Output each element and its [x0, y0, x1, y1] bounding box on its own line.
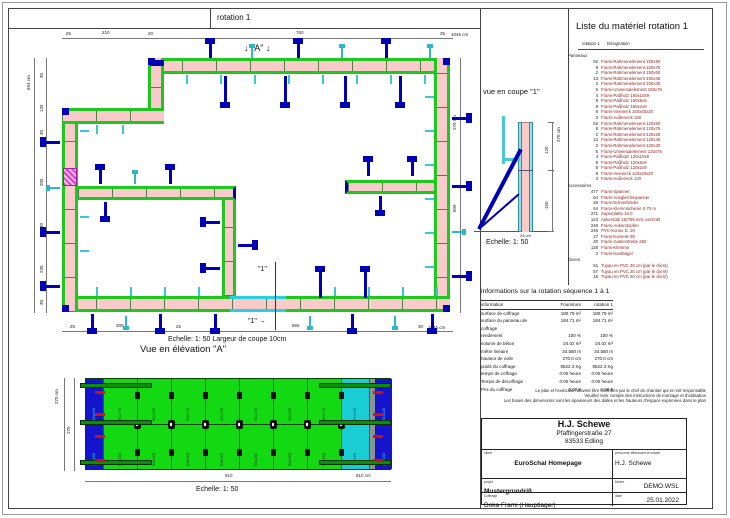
- brace-stem: [159, 314, 162, 328]
- plan-brace: [339, 44, 345, 58]
- plan-brace: [205, 38, 215, 58]
- material-row: 2Frami-Kantbügel: [568, 251, 708, 257]
- formwork-cell: Coffrage Doka Frami (Hauptlager): [482, 493, 613, 506]
- brace-stem: [206, 267, 220, 270]
- bracket-stub: [436, 287, 438, 296]
- plan-brace: [165, 164, 175, 184]
- info-row-rotation: 270.0 cm: [581, 355, 613, 363]
- info-row-fourniture: 0.00 heure: [531, 378, 581, 386]
- brace-stem: [429, 48, 431, 58]
- dim-label: 810 cm: [356, 474, 371, 479]
- material-qty: 3: [568, 176, 598, 182]
- corner-closure: [443, 58, 450, 65]
- corner-closure: [443, 305, 450, 312]
- panel-label-bottom: 90x150: [152, 428, 156, 466]
- plan-brace: [123, 316, 129, 330]
- red-clamp: [373, 413, 383, 416]
- project-label: projet: [482, 479, 493, 485]
- panel-label-top: 75x120: [353, 383, 357, 421]
- material-list: Liste du matériel rotation 1 rotation 1 …: [568, 8, 713, 285]
- company-name: H.J. Schewe: [482, 419, 686, 430]
- brace-head: [340, 102, 350, 108]
- panel-clamp-pin: [170, 423, 172, 426]
- date-label: date: [613, 493, 622, 499]
- plan-brace: [363, 156, 373, 176]
- red-clamp: [95, 413, 105, 416]
- corner-closure: [62, 305, 69, 312]
- info-row-label: Temps de décoffrage: [481, 378, 531, 386]
- material-list-rows: Panneaux52Frami-Rahmenelement 150x908Fra…: [568, 52, 708, 280]
- brace-head: [466, 271, 472, 281]
- info-row: mètre linéaire34.580 m34.580 m: [481, 348, 613, 356]
- plan-brace: [210, 314, 220, 334]
- panel-label-bottom: 90x150: [288, 428, 292, 466]
- bracket-stub: [80, 216, 89, 218]
- info-row: temps de coffrage0.00 heure0.00 heure: [481, 370, 613, 378]
- info-row-label: surface de coffrage: [481, 310, 531, 318]
- plan-brace: [315, 266, 325, 298]
- panel-connector: [271, 392, 276, 399]
- panel-clamp: [168, 420, 175, 429]
- brace-stem: [394, 316, 396, 326]
- panel-clamp-pin: [204, 423, 206, 426]
- title-block-row2: client EuroSchal Homepage personne effec…: [482, 449, 686, 478]
- info-header-row: information Fourniture rotation 1: [481, 300, 613, 310]
- bracket-stub: [368, 287, 370, 296]
- brace-head: [155, 328, 165, 334]
- note-line: Les bases des dimensions sont les épaiss…: [480, 398, 706, 403]
- brace-head: [220, 102, 230, 108]
- elev-dim-bottom: [85, 481, 391, 482]
- bracket-stub: [80, 250, 89, 252]
- info-title: informations sur la rotation séquence 1 …: [481, 289, 609, 296]
- bracket-stub: [130, 287, 132, 296]
- company-address2: 83533 Edling: [482, 438, 686, 446]
- info-rows: surface de coffrage180.79 m²180.79 m²sur…: [481, 310, 613, 394]
- date-cell: date 25.01.2022: [613, 493, 685, 506]
- panel-label-bottom: 90x150: [186, 428, 190, 466]
- material-name: Frami-Kantbügel: [601, 251, 633, 257]
- brace-stem: [46, 231, 60, 234]
- info-row-fourniture: 34.580 m: [531, 348, 581, 356]
- bracket-stub: [425, 232, 434, 234]
- panel-label-top: 90x120: [254, 383, 258, 421]
- date-value: 25.01.2022: [613, 493, 685, 504]
- material-name: Tuyau en PVC 20 cm (par le client): [601, 274, 668, 280]
- panel-connector: [237, 392, 242, 399]
- brace-stem: [364, 272, 367, 298]
- formwork-label: Coffrage: [482, 493, 497, 499]
- brace-head: [375, 210, 385, 216]
- bracket-stub: [254, 75, 256, 84]
- section-dim-tick: [548, 122, 554, 123]
- brace-head: [280, 102, 290, 108]
- info-row-label: rendement: [481, 332, 531, 340]
- elev-dim-left-outer: [64, 378, 65, 471]
- plan-brace: [155, 314, 165, 334]
- plan-brace: [452, 113, 472, 123]
- dim-label: 270: [67, 426, 72, 434]
- info-row-fourniture: 0.00 heure: [531, 370, 581, 378]
- info-row-rotation: 8622.3 Kg: [581, 363, 613, 371]
- material-qty: 2: [568, 251, 598, 257]
- plan-brace: [46, 185, 60, 191]
- panel-connector: [169, 392, 174, 399]
- bracket-stub: [220, 75, 222, 84]
- section-guard-post: [502, 116, 505, 164]
- material-header-rule: [578, 49, 704, 50]
- brace-head: [100, 216, 110, 222]
- brace-stem: [169, 170, 172, 184]
- info-row-fourniture: 8622.3 Kg: [531, 363, 581, 371]
- bracket-stub: [198, 287, 200, 296]
- panel-connector: [203, 392, 208, 399]
- red-clamp: [373, 391, 383, 394]
- red-clamp: [373, 459, 383, 462]
- bracket-stub: [390, 75, 392, 84]
- brace-stem: [99, 170, 102, 184]
- section-panel-right: [529, 122, 533, 232]
- brace-head: [210, 328, 220, 334]
- brace-stem: [452, 117, 466, 120]
- elevation-area: Vue en élévation "A" 45x12045x15090x1209…: [0, 340, 480, 510]
- section-view: vue en coupe "1" 120 150 270 cm 25 cm Ec…: [470, 80, 570, 255]
- info-row: surface de coffrage180.79 m²180.79 m²: [481, 310, 613, 318]
- info-row-label: volume de béton: [481, 340, 531, 348]
- plan-brace: [95, 164, 105, 184]
- brace-head: [347, 328, 357, 334]
- plan-brace: [392, 316, 398, 330]
- info-row-fourniture: 24.02 m³: [531, 340, 581, 348]
- panel-label-top: 90x120: [152, 383, 156, 421]
- red-clamp: [95, 459, 105, 462]
- brace-stem: [309, 316, 311, 326]
- panel-connector: [169, 449, 174, 456]
- elevation-box: 45x12045x15090x12090x15090x12090x15090x1…: [85, 378, 391, 470]
- person-value: H.J. Schewe: [613, 456, 685, 467]
- section-dim-line: [552, 122, 553, 232]
- bracket-stub: [288, 75, 290, 84]
- bracket-stub: [334, 287, 336, 296]
- panel-label-bottom: 90x150: [254, 428, 258, 466]
- plan-brace: [293, 38, 303, 58]
- brace-head: [395, 102, 405, 108]
- brace-stem: [50, 187, 60, 189]
- dim-label: 270 cm: [55, 389, 60, 404]
- brace-head: [307, 326, 313, 330]
- title-block-company-cell: H.J. Schewe Pfaffingerstraße 27 83533 Ed…: [482, 419, 686, 449]
- brace-stem: [134, 174, 136, 184]
- waler-bar: [319, 383, 391, 388]
- info-row-rotation: 180.79 m²: [581, 310, 613, 318]
- bracket-stub: [425, 266, 434, 268]
- brace-stem: [341, 48, 343, 58]
- section-strut-main: [477, 148, 522, 230]
- panel-label-top: 90x120: [322, 383, 326, 421]
- plan-decor-layer: [0, 0, 480, 360]
- info-row: surface du panneau de coffrage184.71 m²1…: [481, 317, 613, 332]
- waler-bar: [80, 460, 152, 465]
- panel-clamp: [270, 420, 277, 429]
- brace-stem: [125, 316, 127, 326]
- plan-brace: [40, 227, 60, 237]
- plan-brace: [452, 181, 472, 191]
- info-row-rotation: 0.00 heure: [581, 378, 613, 386]
- material-list-title: Liste du matériel rotation 1: [576, 22, 688, 32]
- brace-stem: [344, 76, 347, 102]
- info-row: Temps de décoffrage0.00 heure0.00 heure: [481, 378, 613, 386]
- brace-head: [252, 240, 258, 250]
- panel-connector: [339, 449, 344, 456]
- plan-brace: [395, 76, 405, 108]
- brace-head: [87, 328, 97, 334]
- formwork-value: Doka Frami (Hauptlager): [482, 499, 612, 509]
- bracket-stub: [424, 75, 426, 84]
- title-block: H.J. Schewe Pfaffingerstraße 27 83533 Ed…: [481, 418, 687, 505]
- plan-brace: [375, 196, 385, 216]
- panel-label-top: 90x120: [118, 383, 122, 421]
- drawing-sheet: rotation 1 25 210 20 760 35 1045 cm 694 …: [0, 0, 730, 518]
- brace-head: [427, 328, 437, 334]
- section-dim-tick: [548, 231, 554, 232]
- client-cell: client EuroSchal Homepage: [482, 450, 613, 478]
- red-clamp: [95, 435, 105, 438]
- bracket-stub: [96, 125, 98, 134]
- title-block-row3: projet Mustergrundriß fichier DEMO.WSL: [482, 478, 686, 492]
- plan-brace: [249, 44, 255, 58]
- file-cell: fichier DEMO.WSL: [613, 479, 685, 492]
- material-row: 15Tuyau en PVC 20 cm (par le client): [568, 274, 708, 280]
- dim-label: 150: [545, 201, 550, 209]
- bracket-stub: [96, 287, 98, 296]
- bracket-stub: [322, 75, 324, 84]
- brace-stem: [411, 162, 414, 176]
- info-row-rotation: 184.71 m²: [581, 317, 613, 332]
- dim-label: 120: [545, 146, 550, 154]
- plan-brace: [381, 38, 391, 58]
- section-wall-core: [522, 122, 529, 232]
- plan-brace: [427, 314, 437, 334]
- panel-connector: [135, 392, 140, 399]
- waler-bar: [80, 420, 152, 425]
- info-row: hauteur de voile270.0 cm270.0 cm: [481, 355, 613, 363]
- info-row-label: hauteur de voile: [481, 355, 531, 363]
- red-clamp: [95, 391, 105, 394]
- brace-stem: [452, 231, 462, 233]
- elevation-title: Vue en élévation "A": [140, 345, 226, 355]
- brace-stem: [46, 141, 60, 144]
- brace-stem: [46, 285, 60, 288]
- plan-brace: [347, 314, 357, 334]
- info-row: volume de béton24.02 m³24.02 m³: [481, 340, 613, 348]
- brace-stem: [452, 185, 466, 188]
- corner-closure: [62, 108, 69, 115]
- panel-clamp: [304, 420, 311, 429]
- panel-connector: [135, 449, 140, 456]
- info-row-label: mètre linéaire: [481, 348, 531, 356]
- red-clamp: [373, 435, 383, 438]
- info-col-fourniture: Fourniture: [531, 301, 581, 309]
- closure-bar: [150, 60, 164, 66]
- dim-label: 25 cm: [520, 234, 531, 238]
- info-row-fourniture: 270.0 cm: [531, 355, 581, 363]
- file-label: fichier: [613, 479, 624, 485]
- waler-bar: [80, 383, 152, 388]
- panel-clamp-pin: [272, 423, 274, 426]
- section-scale: Echelle: 1: 50: [486, 239, 528, 246]
- info-row-label: poids du coffrage: [481, 363, 531, 371]
- brace-head: [462, 229, 466, 235]
- brace-stem: [385, 44, 388, 58]
- brace-stem: [284, 76, 287, 102]
- bracket-stub: [402, 287, 404, 296]
- section-title: vue en coupe "1": [483, 88, 540, 96]
- plan-brace: [427, 44, 433, 58]
- brace-stem: [431, 314, 434, 328]
- brace-stem: [91, 314, 94, 328]
- info-row-fourniture: 184.71 m²: [531, 317, 581, 332]
- client-value: EuroSchal Homepage: [482, 456, 612, 467]
- dim-label: 810: [225, 474, 233, 479]
- info-row-fourniture: 180.79 m²: [531, 310, 581, 318]
- info-row-rotation: 34.580 m: [581, 348, 613, 356]
- company-address1: Pfaffingerstraße 27: [482, 430, 686, 438]
- brace-stem: [351, 314, 354, 328]
- panel-clamp-pin: [238, 423, 240, 426]
- section-ground-line: [474, 231, 550, 232]
- bracket-stub: [425, 198, 434, 200]
- panel-label-top: 90x120: [186, 383, 190, 421]
- section-panel-joint: [518, 170, 533, 171]
- panel-connector: [237, 449, 242, 456]
- project-cell: projet Mustergrundriß: [482, 479, 613, 492]
- brace-stem: [214, 314, 217, 328]
- material-col-rotation: rotation 1: [582, 42, 600, 46]
- plan-brace: [407, 156, 417, 176]
- brace-stem: [367, 162, 370, 176]
- plan-brace: [40, 281, 60, 291]
- brace-stem: [224, 76, 227, 102]
- bracket-stub: [80, 130, 89, 132]
- bracket-stub: [425, 164, 434, 166]
- panel-connector: [339, 392, 344, 399]
- info-row-fourniture: 100 %: [531, 332, 581, 340]
- info-row-rotation: 100 %: [581, 332, 613, 340]
- info-table: information Fourniture rotation 1 surfac…: [481, 300, 613, 393]
- waler-bar: [319, 420, 391, 425]
- plan-brace: [452, 271, 472, 281]
- bracket-stub: [356, 75, 358, 84]
- panel-label-top: 90x120: [288, 383, 292, 421]
- plan-area: 25 210 20 760 35 1045 cm 694 cm 30 139 3…: [0, 0, 480, 360]
- plan-brace: [307, 316, 313, 330]
- brace-stem: [209, 44, 212, 58]
- brace-stem: [251, 48, 253, 58]
- title-block-row4: Coffrage Doka Frami (Hauptlager) date 25…: [482, 492, 686, 506]
- brace-head: [392, 326, 398, 330]
- brace-stem: [379, 196, 382, 210]
- info-row: rendement100 %100 %: [481, 332, 613, 340]
- material-qty: 15: [568, 274, 598, 280]
- dim-label: 270 cm: [557, 127, 562, 142]
- brace-stem: [104, 202, 107, 216]
- info-col-information: information: [481, 301, 531, 309]
- panel-label-top: 90x120: [220, 383, 224, 421]
- brace-stem: [297, 44, 300, 58]
- material-row: 3Frami-Außeneck 120: [568, 176, 708, 182]
- panel-connector: [203, 449, 208, 456]
- panel-clamp: [202, 420, 209, 429]
- bracket-stub: [122, 125, 124, 134]
- panel-connector: [271, 449, 276, 456]
- bracket-stub: [425, 96, 434, 98]
- bracket-stub: [186, 75, 188, 84]
- panel-clamp-pin: [306, 423, 308, 426]
- plan-brace: [132, 170, 138, 184]
- plan-brace: [200, 263, 220, 273]
- bracket-stub: [425, 130, 434, 132]
- panel-connector: [305, 392, 310, 399]
- material-name: Frami-Außeneck 120: [601, 176, 641, 182]
- plan-brace: [40, 137, 60, 147]
- plan-brace: [452, 229, 466, 235]
- material-col-designation: Désignation: [607, 42, 630, 46]
- info-row-rotation: 24.02 m³: [581, 340, 613, 348]
- panel-label-bottom: 90x150: [220, 428, 224, 466]
- plan-brace: [340, 76, 350, 108]
- info-row-label: surface du panneau de coffrage: [481, 317, 531, 332]
- brace-stem: [452, 275, 466, 278]
- brace-stem: [238, 244, 252, 247]
- bracket-stub: [164, 287, 166, 296]
- plan-brace: [87, 314, 97, 334]
- elevation-scale: Echelle: 1: 50: [196, 486, 238, 493]
- section-dim-tick: [548, 170, 554, 171]
- info-row-rotation: 0.00 heure: [581, 370, 613, 378]
- info-row-label: temps de coffrage: [481, 370, 531, 378]
- info-row: poids du coffrage8622.3 Kg8622.3 Kg: [481, 363, 613, 371]
- brace-head: [123, 326, 129, 330]
- info-col-rotation: rotation 1: [581, 301, 613, 309]
- notes-block: Le plan et l'exécution doivent être cont…: [480, 388, 706, 403]
- panel-connector: [305, 449, 310, 456]
- elev-dim-left-inner: [74, 378, 75, 471]
- brace-stem: [399, 76, 402, 102]
- panel-clamp: [236, 420, 243, 429]
- plan-brace: [100, 202, 110, 222]
- brace-stem: [206, 221, 220, 224]
- plan-brace: [200, 217, 220, 227]
- person-cell: personne effectuant le travail H.J. Sche…: [613, 450, 685, 478]
- brace-stem: [319, 272, 322, 298]
- plan-brace: [238, 240, 258, 250]
